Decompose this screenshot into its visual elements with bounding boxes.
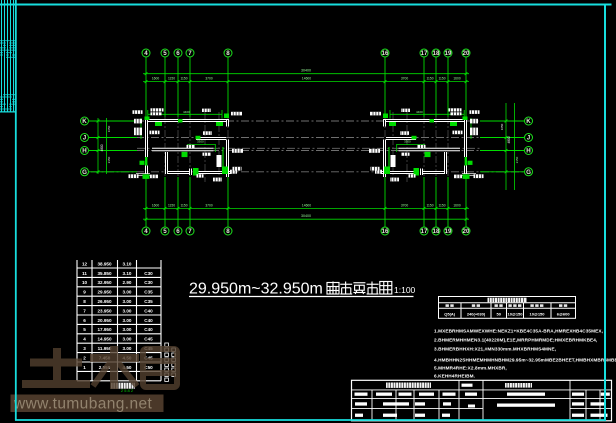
svg-text:2 5 8 2: 2 5 8 2: [121, 388, 134, 393]
svg-text:12: 12: [82, 261, 88, 266]
svg-text:C35: C35: [144, 290, 153, 295]
svg-text:4: 4: [144, 228, 148, 235]
svg-text:4: 4: [144, 50, 148, 57]
svg-text:9: 9: [83, 290, 86, 295]
svg-text:19: 19: [445, 50, 452, 57]
svg-text:8: 8: [226, 50, 230, 57]
svg-text:2: 2: [83, 355, 86, 360]
svg-text:Q5(A): Q5(A): [444, 312, 456, 317]
svg-text:3.00: 3.00: [123, 318, 132, 323]
svg-text:4400: 4400: [183, 110, 190, 114]
svg-text:6: 6: [83, 318, 86, 323]
svg-text:8: 8: [83, 299, 86, 304]
svg-text:30400: 30400: [301, 214, 311, 218]
svg-text:1650: 1650: [500, 123, 504, 130]
svg-text:1150: 1150: [168, 77, 175, 81]
svg-text:3.00: 3.00: [123, 327, 132, 332]
svg-text:29.950m~32.950m: 29.950m~32.950m: [189, 281, 323, 298]
svg-text:6: 6: [176, 228, 180, 235]
svg-text:3700: 3700: [401, 77, 409, 81]
svg-text:4800: 4800: [507, 136, 511, 143]
svg-text:10@150: 10@150: [507, 312, 523, 317]
svg-text:3.10: 3.10: [123, 271, 132, 276]
svg-text:1.MXEBRHMSAMWEXWHE:NEKZ1+KBE4C: 1.MXEBRHMSAMWEXWHE:NEKZ1+KBE4C35A-BRA,HM…: [434, 329, 603, 334]
svg-text:1150: 1150: [426, 77, 433, 81]
svg-text:16: 16: [382, 50, 389, 57]
svg-text:5.MHMR4RHE:X2.8mm.MHXBR,: 5.MHMR4RHE:X2.8mm.MHXBR,: [434, 366, 507, 371]
svg-text:11: 11: [82, 271, 87, 276]
svg-text:3.00: 3.00: [123, 308, 132, 313]
svg-text:J: J: [527, 135, 531, 142]
svg-text:3700: 3700: [205, 203, 213, 207]
svg-text:20: 20: [463, 50, 470, 57]
svg-text:K: K: [526, 118, 531, 125]
svg-text:8: 8: [226, 228, 230, 235]
svg-text:1150: 1150: [168, 203, 175, 207]
svg-text:7: 7: [188, 50, 192, 57]
svg-text:2150: 2150: [515, 156, 519, 163]
svg-text:3.BHMERBHHXH:X21,#MN330mm.MHXB: 3.BHMERBHHXH:X21,#MN330mm.MHXBRHMS4MNE,: [434, 347, 556, 352]
svg-text:G: G: [82, 169, 87, 176]
svg-text:18: 18: [433, 228, 440, 235]
svg-text:17: 17: [421, 228, 428, 235]
svg-text:2.90: 2.90: [123, 280, 132, 285]
svg-text:H: H: [526, 148, 531, 155]
svg-text:1600: 1600: [152, 203, 160, 207]
svg-text:3700: 3700: [205, 77, 213, 81]
svg-text:14.950: 14.950: [97, 337, 111, 342]
svg-text:3.00: 3.00: [123, 346, 132, 351]
svg-text:35.850: 35.850: [97, 271, 111, 276]
svg-text:6: 6: [176, 50, 180, 57]
svg-text:10: 10: [82, 280, 88, 285]
svg-text:C45: C45: [144, 337, 153, 342]
svg-text:23.950: 23.950: [97, 308, 111, 313]
svg-text:1: 1: [83, 365, 86, 370]
svg-text:7: 7: [83, 308, 86, 313]
svg-text:10@150: 10@150: [529, 312, 545, 317]
svg-text:1150: 1150: [180, 77, 187, 81]
svg-text:C40: C40: [144, 318, 153, 323]
svg-text:1150: 1150: [426, 203, 433, 207]
svg-text:11.950: 11.950: [98, 346, 112, 351]
svg-text:C30: C30: [144, 280, 153, 285]
svg-text:20.950: 20.950: [97, 318, 111, 323]
svg-text:16: 16: [382, 228, 389, 235]
svg-text:3700: 3700: [401, 203, 409, 207]
svg-text:1150: 1150: [438, 203, 445, 207]
svg-text:C35: C35: [144, 299, 153, 304]
svg-text:C40: C40: [144, 327, 153, 332]
svg-text:3.00: 3.00: [123, 299, 132, 304]
svg-text:4.HMBHHN2SHHMEMHMHNBHM29.95m~3: 4.HMBHHN2SHHMEMHMHNBHM29.95m~32.95mMBE2B…: [434, 358, 616, 363]
svg-text:29.950: 29.950: [97, 290, 111, 295]
svg-text:1650: 1650: [107, 125, 111, 132]
svg-text:2.BHMERMHHMEN3.1(40220M),E1E,M: 2.BHMERMHHMEN3.1(40220M),E1E,MRRPHMRMDE;…: [434, 338, 597, 343]
svg-text:4400: 4400: [416, 110, 423, 114]
svg-text:4: 4: [83, 337, 86, 342]
svg-text:1150: 1150: [438, 77, 445, 81]
svg-text:1:100: 1:100: [394, 285, 416, 295]
svg-text:6@600: 6@600: [557, 312, 571, 317]
svg-text:20: 20: [463, 228, 470, 235]
svg-text:C40: C40: [144, 308, 153, 313]
svg-text:3.00: 3.00: [123, 290, 132, 295]
svg-text:1600: 1600: [453, 77, 461, 81]
svg-text:K: K: [82, 118, 87, 125]
svg-text:3300: 3300: [404, 139, 411, 143]
svg-text:14600: 14600: [302, 203, 311, 207]
svg-text:J: J: [83, 135, 87, 142]
svg-text:1600: 1600: [152, 77, 160, 81]
svg-text:5: 5: [163, 50, 167, 57]
svg-text:7: 7: [188, 228, 192, 235]
svg-text:17: 17: [421, 50, 428, 57]
svg-text:C30: C30: [144, 271, 153, 276]
svg-text:5: 5: [83, 327, 86, 332]
svg-text:3300: 3300: [197, 140, 204, 144]
svg-text:3.00: 3.00: [123, 337, 132, 342]
svg-text:4800: 4800: [100, 144, 104, 151]
svg-text:6.KEHH4RHEIBM.: 6.KEHH4RHEIBM.: [434, 374, 475, 379]
svg-text:1600: 1600: [453, 203, 461, 207]
svg-text:3.10: 3.10: [123, 261, 132, 266]
svg-text:G: G: [526, 169, 531, 176]
svg-text:H: H: [82, 148, 87, 155]
svg-text:www.tumubang.net: www.tumubang.net: [13, 396, 153, 413]
svg-text:38.950: 38.950: [97, 261, 111, 266]
svg-text:5: 5: [163, 228, 167, 235]
svg-text:18: 18: [433, 50, 440, 57]
svg-text:50: 50: [496, 312, 501, 317]
svg-text:26.950: 26.950: [97, 299, 111, 304]
svg-text:1150: 1150: [180, 203, 187, 207]
svg-text:32.950: 32.950: [97, 280, 111, 285]
svg-text:17.950: 17.950: [97, 327, 111, 332]
svg-text:14600: 14600: [302, 77, 311, 81]
svg-text:2150: 2150: [107, 156, 111, 163]
svg-text:30400: 30400: [301, 69, 311, 73]
svg-text:3: 3: [83, 346, 86, 351]
svg-text:19: 19: [445, 228, 452, 235]
svg-text:240(+030): 240(+030): [467, 312, 486, 317]
